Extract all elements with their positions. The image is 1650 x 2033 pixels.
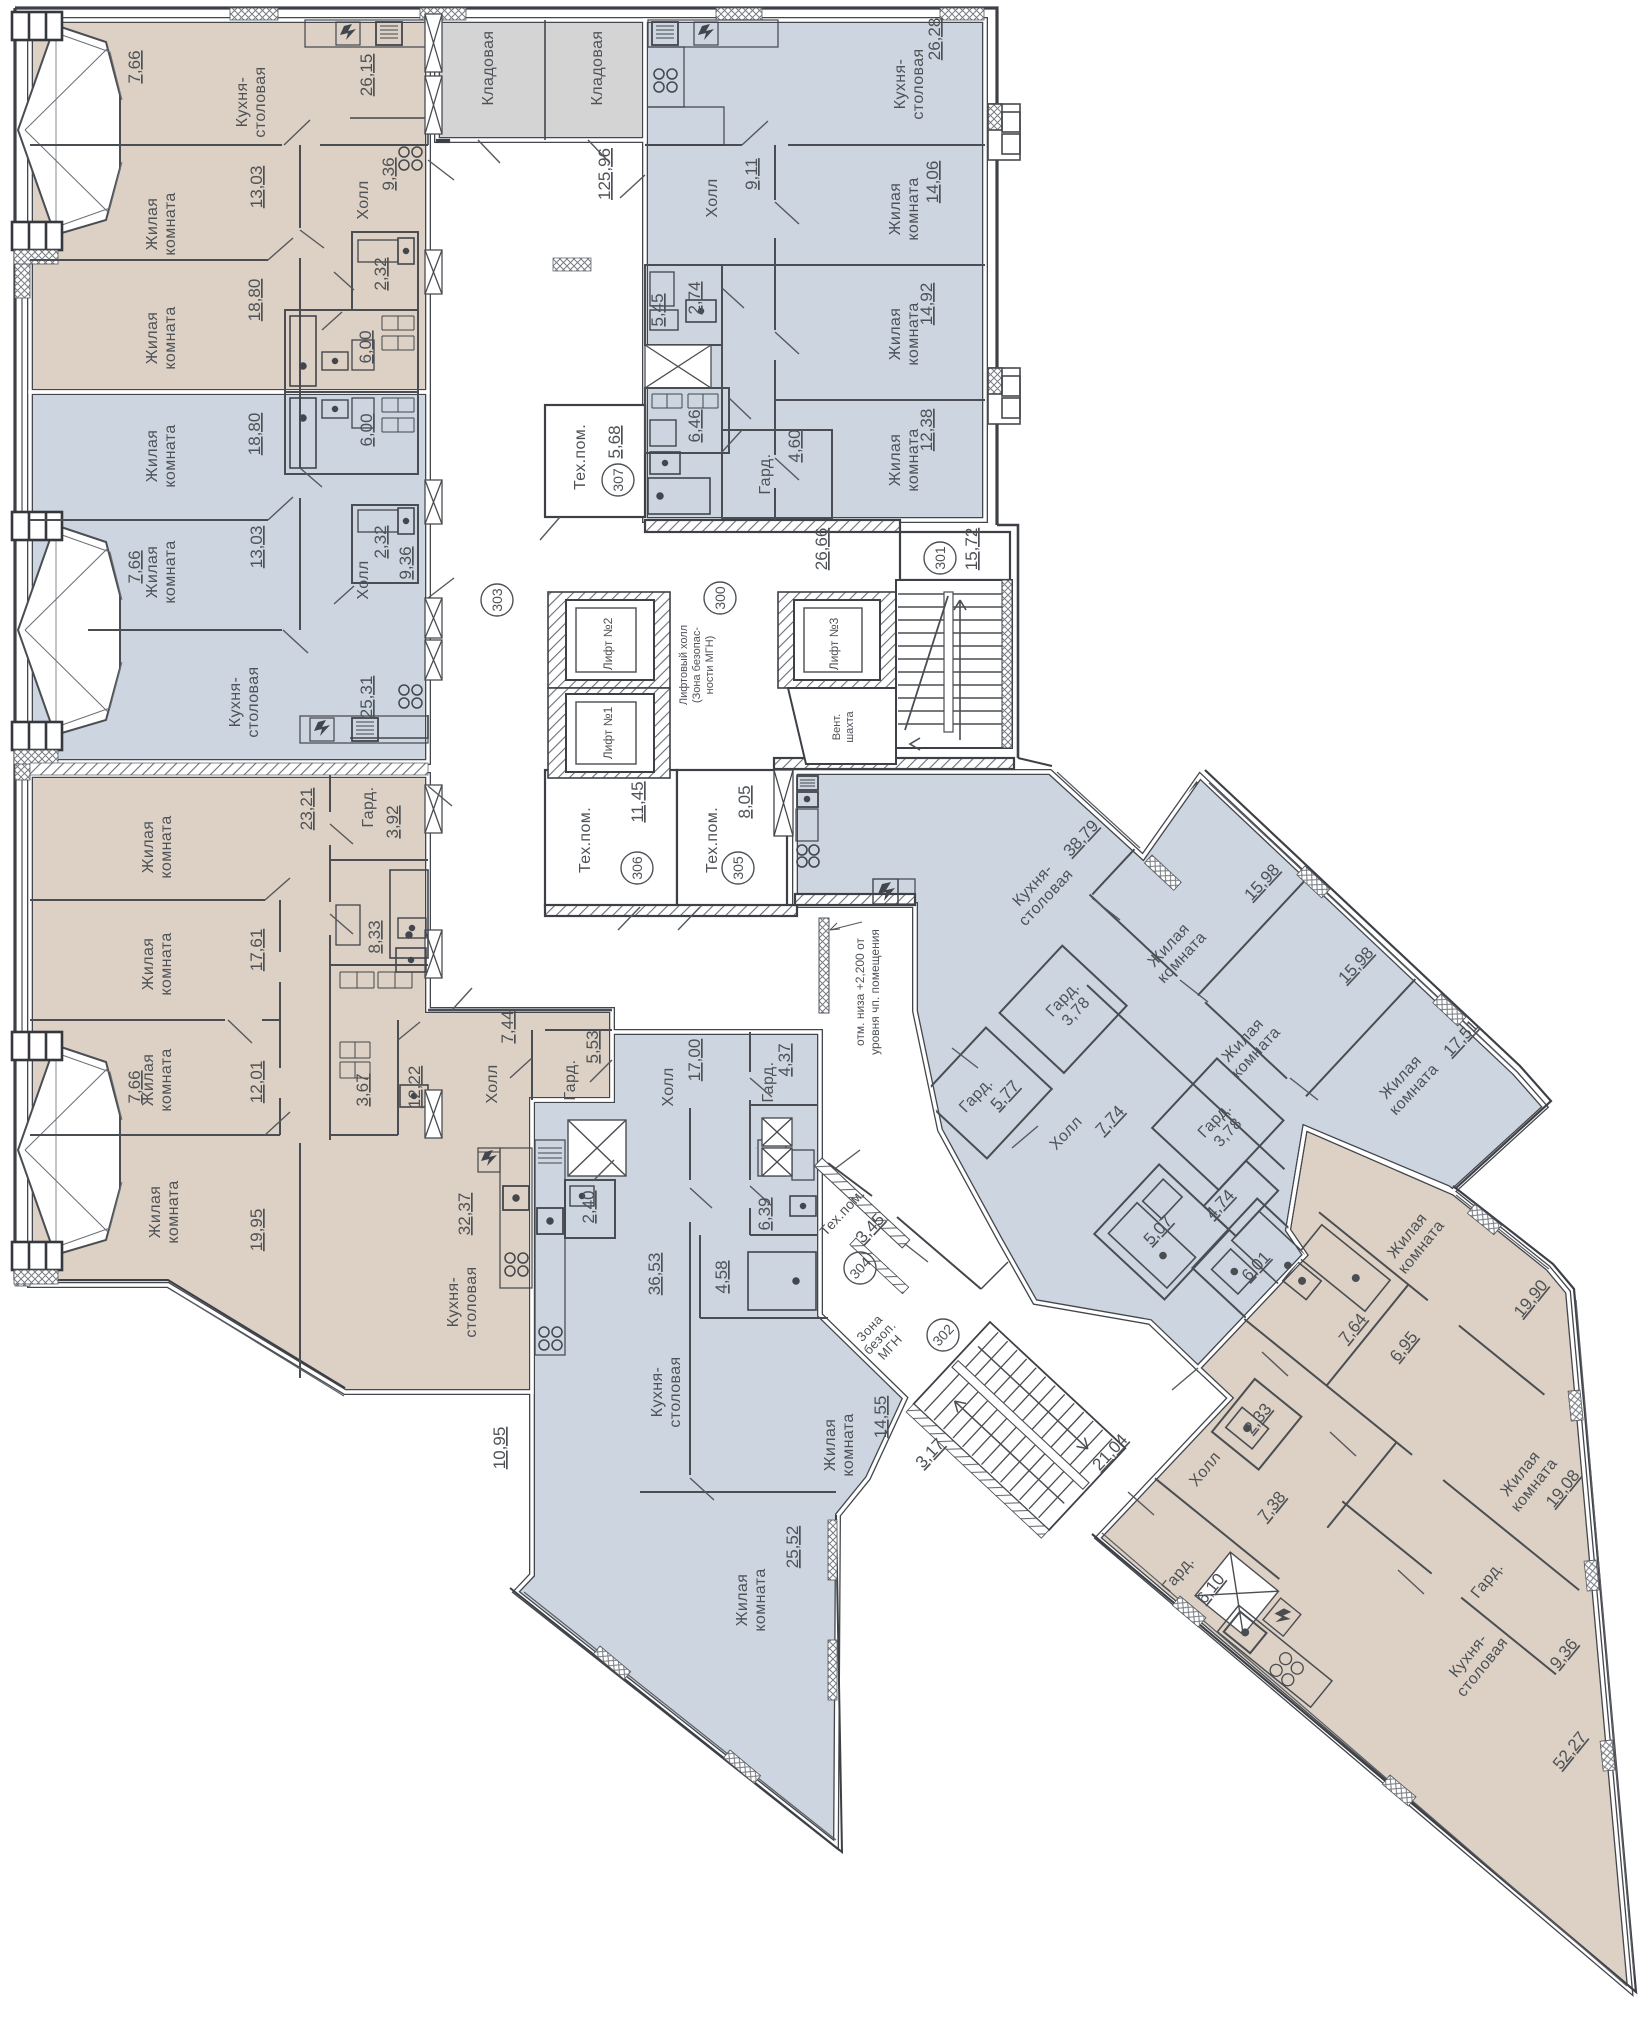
- svg-text:столовая: столовая: [667, 1356, 684, 1427]
- svg-text:3,92: 3,92: [383, 805, 402, 838]
- svg-text:14,06: 14,06: [923, 161, 942, 204]
- svg-text:301: 301: [932, 546, 948, 570]
- svg-text:306: 306: [629, 856, 645, 880]
- svg-text:6,39: 6,39: [755, 1197, 774, 1230]
- svg-text:Тех.пом.: Тех.пом.: [572, 424, 589, 490]
- svg-text:303: 303: [489, 588, 505, 612]
- svg-text:9,36: 9,36: [396, 546, 415, 579]
- svg-text:5,68: 5,68: [605, 425, 624, 458]
- svg-text:столовая: столовая: [252, 66, 269, 137]
- svg-text:36,53: 36,53: [645, 1253, 664, 1296]
- svg-text:Холл: Холл: [355, 180, 372, 219]
- svg-text:Вент.шахта: Вент.шахта: [831, 710, 856, 742]
- svg-text:12,38: 12,38: [917, 409, 936, 452]
- svg-text:комната: комната: [162, 424, 179, 487]
- svg-text:7,44: 7,44: [498, 1010, 517, 1043]
- svg-text:5,45: 5,45: [648, 293, 667, 326]
- svg-text:305: 305: [730, 856, 746, 880]
- svg-text:8,33: 8,33: [365, 920, 384, 953]
- svg-text:Холл: Холл: [355, 560, 372, 599]
- svg-text:комната: комната: [158, 932, 175, 995]
- svg-text:Жилая: Жилая: [147, 1186, 164, 1239]
- svg-text:Жилая: Жилая: [822, 1419, 839, 1472]
- svg-text:13,03: 13,03: [247, 526, 266, 569]
- svg-text:комната: комната: [162, 192, 179, 255]
- svg-text:26,66: 26,66: [812, 528, 831, 571]
- svg-text:Лифт №3: Лифт №3: [827, 617, 841, 670]
- svg-text:Жилая: Жилая: [144, 546, 161, 599]
- svg-text:6,46: 6,46: [685, 409, 704, 442]
- svg-text:7,66: 7,66: [125, 50, 144, 83]
- svg-text:9,11: 9,11: [742, 158, 761, 190]
- svg-text:10,95: 10,95: [490, 1427, 509, 1470]
- svg-text:17,61: 17,61: [247, 929, 266, 972]
- svg-text:Жилая: Жилая: [140, 821, 157, 874]
- svg-text:Жилая: Жилая: [144, 198, 161, 251]
- svg-text:Гард.: Гард.: [757, 454, 774, 495]
- svg-text:11,45: 11,45: [628, 781, 647, 822]
- svg-text:комната: комната: [905, 177, 922, 240]
- svg-text:2,32: 2,32: [371, 525, 390, 558]
- svg-text:комната: комната: [165, 1180, 182, 1243]
- svg-text:отм. низа +2,200 отуровня чп.: отм. низа +2,200 отуровня чп. помещения: [853, 929, 882, 1055]
- svg-text:19,95: 19,95: [247, 1209, 266, 1252]
- svg-text:12,01: 12,01: [247, 1061, 266, 1104]
- svg-text:18,80: 18,80: [245, 413, 264, 456]
- svg-text:Холл: Холл: [660, 1067, 677, 1106]
- svg-text:Жилая: Жилая: [734, 1574, 751, 1627]
- svg-text:2,74: 2,74: [685, 281, 704, 314]
- svg-text:столовая: столовая: [463, 1266, 480, 1337]
- svg-text:Тех.пом.: Тех.пом.: [577, 807, 594, 873]
- svg-text:Гард.: Гард.: [360, 787, 377, 828]
- svg-text:7,66: 7,66: [125, 550, 144, 583]
- svg-text:5,53: 5,53: [583, 1030, 602, 1063]
- svg-text:26,28: 26,28: [925, 18, 944, 61]
- svg-text:Кухня-: Кухня-: [649, 1367, 666, 1418]
- svg-text:комната: комната: [158, 1048, 175, 1111]
- svg-text:8,05: 8,05: [735, 785, 754, 818]
- svg-text:12,22: 12,22: [405, 1066, 424, 1109]
- svg-text:Жилая: Жилая: [887, 434, 904, 487]
- svg-text:Лифтовый холл(Зона безопас-нос: Лифтовый холл(Зона безопас-ности МГН): [678, 625, 716, 705]
- svg-text:комната: комната: [840, 1413, 857, 1476]
- svg-text:Кухня-: Кухня-: [234, 77, 251, 128]
- svg-text:комната: комната: [162, 306, 179, 369]
- svg-text:Жилая: Жилая: [144, 430, 161, 483]
- svg-text:Тех.пом.: Тех.пом.: [704, 807, 721, 873]
- svg-text:Кухня-: Кухня-: [892, 59, 909, 110]
- svg-text:Жилая: Жилая: [140, 938, 157, 991]
- svg-text:25,52: 25,52: [783, 1526, 802, 1569]
- svg-text:2,40: 2,40: [579, 1190, 598, 1223]
- svg-text:Жилая: Жилая: [144, 312, 161, 365]
- svg-text:3,67: 3,67: [353, 1073, 372, 1106]
- svg-text:307: 307: [610, 468, 626, 492]
- svg-text:9,36: 9,36: [379, 157, 398, 190]
- svg-text:18,80: 18,80: [245, 279, 264, 322]
- svg-text:2,32: 2,32: [371, 257, 390, 290]
- svg-text:Жилая: Жилая: [887, 183, 904, 236]
- svg-text:6,00: 6,00: [356, 330, 375, 363]
- svg-text:15,72: 15,72: [962, 528, 981, 571]
- svg-text:комната: комната: [752, 1568, 769, 1631]
- svg-text:комната: комната: [158, 815, 175, 878]
- svg-text:17,00: 17,00: [685, 1039, 704, 1082]
- svg-text:14,92: 14,92: [917, 283, 936, 326]
- svg-text:23,21: 23,21: [297, 788, 316, 831]
- svg-text:26,15: 26,15: [357, 54, 376, 97]
- svg-text:Холл: Холл: [484, 1064, 501, 1103]
- svg-text:25,31: 25,31: [357, 676, 376, 719]
- svg-text:300: 300: [712, 586, 728, 610]
- svg-text:32,37: 32,37: [455, 1193, 474, 1236]
- svg-text:4,58: 4,58: [712, 1260, 731, 1293]
- svg-text:7,66: 7,66: [125, 1070, 144, 1103]
- svg-text:Кухня-: Кухня-: [227, 677, 244, 728]
- svg-text:Гард.: Гард.: [562, 1060, 579, 1101]
- svg-text:комната: комната: [162, 540, 179, 603]
- svg-text:13,03: 13,03: [247, 166, 266, 209]
- svg-text:Кладовая: Кладовая: [589, 31, 606, 106]
- svg-text:14,55: 14,55: [871, 1396, 890, 1439]
- svg-text:Кладовая: Кладовая: [480, 31, 497, 106]
- svg-text:6,00: 6,00: [357, 413, 376, 446]
- svg-text:Жилая: Жилая: [887, 308, 904, 361]
- svg-text:Лифт №2: Лифт №2: [601, 617, 615, 670]
- svg-text:Холл: Холл: [704, 178, 721, 217]
- svg-text:125,96: 125,96: [595, 148, 614, 200]
- svg-text:4,37: 4,37: [775, 1043, 794, 1076]
- svg-text:столовая: столовая: [245, 666, 262, 737]
- svg-text:Кухня-: Кухня-: [445, 1277, 462, 1328]
- svg-text:Лифт №1: Лифт №1: [601, 706, 615, 759]
- svg-text:4,60: 4,60: [785, 429, 804, 462]
